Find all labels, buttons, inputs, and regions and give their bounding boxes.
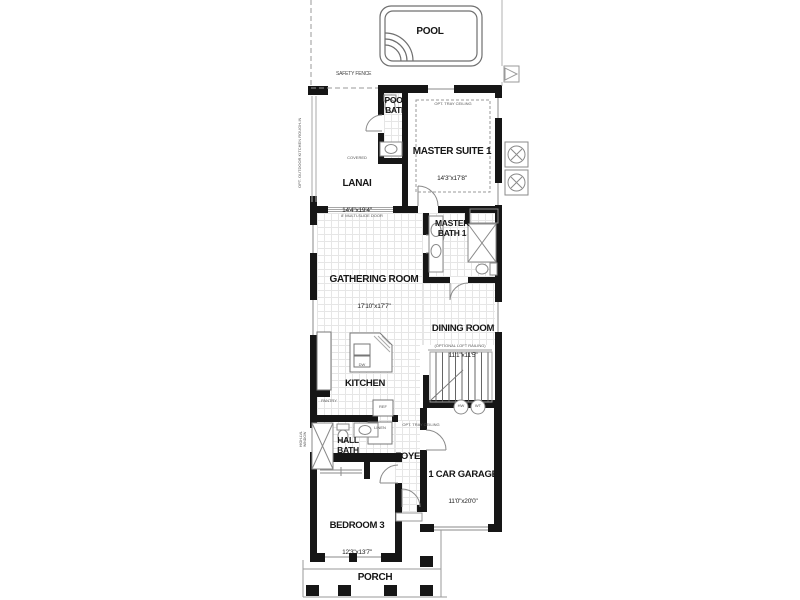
note-tray-ceiling-foyer: OPT. TRAY CEILING bbox=[396, 423, 446, 427]
room-label-master-bath: MASTER BATH 1 bbox=[430, 219, 474, 238]
note-ref: REF bbox=[375, 405, 391, 409]
note-tray-ceiling-master: OPT. TRAY CEILING bbox=[416, 102, 490, 106]
note-wt: WT bbox=[472, 404, 484, 408]
room-label-foyer: FOYER bbox=[394, 452, 428, 463]
note-pantry: PANTRY bbox=[315, 399, 343, 403]
room-label-garage: 1 CAR GARAGE 11'0"x20'0" bbox=[424, 452, 502, 524]
room-label-dining: DINING ROOM 11'1"x11'5" bbox=[428, 306, 498, 378]
note-linen: LINEN bbox=[370, 426, 390, 430]
room-label-master-suite: MASTER SUITE 1 14'3"x17'8" bbox=[408, 128, 496, 200]
note-multi-slide-door: 8' MULTI-SLIDE DOOR bbox=[330, 214, 394, 218]
room-label-porch: PORCH bbox=[350, 572, 400, 583]
room-label-kitchen: KITCHEN bbox=[338, 379, 392, 390]
note-high-window: HIGH-LVL WINDOW bbox=[300, 424, 308, 454]
note-outdoor-kitchen: OPT. OUTDOOR KITCHEN ROUGH-IN bbox=[298, 105, 302, 200]
room-label-bedroom3: BEDROOM 3 12'3"x13'7" bbox=[324, 503, 390, 575]
room-label-pool-bath: POOL BATH bbox=[380, 96, 412, 115]
note-hw: HW bbox=[455, 404, 467, 408]
room-label-pool: POOL bbox=[405, 26, 455, 37]
note-dw: DW bbox=[353, 363, 371, 367]
room-label-gathering: GATHERING ROOM 17'10"x17'7" bbox=[322, 256, 426, 328]
room-label-hall-bath: HALL BATH bbox=[331, 436, 365, 455]
note-loft-railing: (OPTIONAL LOFT RAILING) bbox=[428, 344, 492, 348]
note-safety-fence: SAFETY FENCE bbox=[336, 72, 396, 78]
floor-plan: POOL SAFETY FENCE POOL BATH OPT. TRAY CE… bbox=[0, 0, 800, 600]
